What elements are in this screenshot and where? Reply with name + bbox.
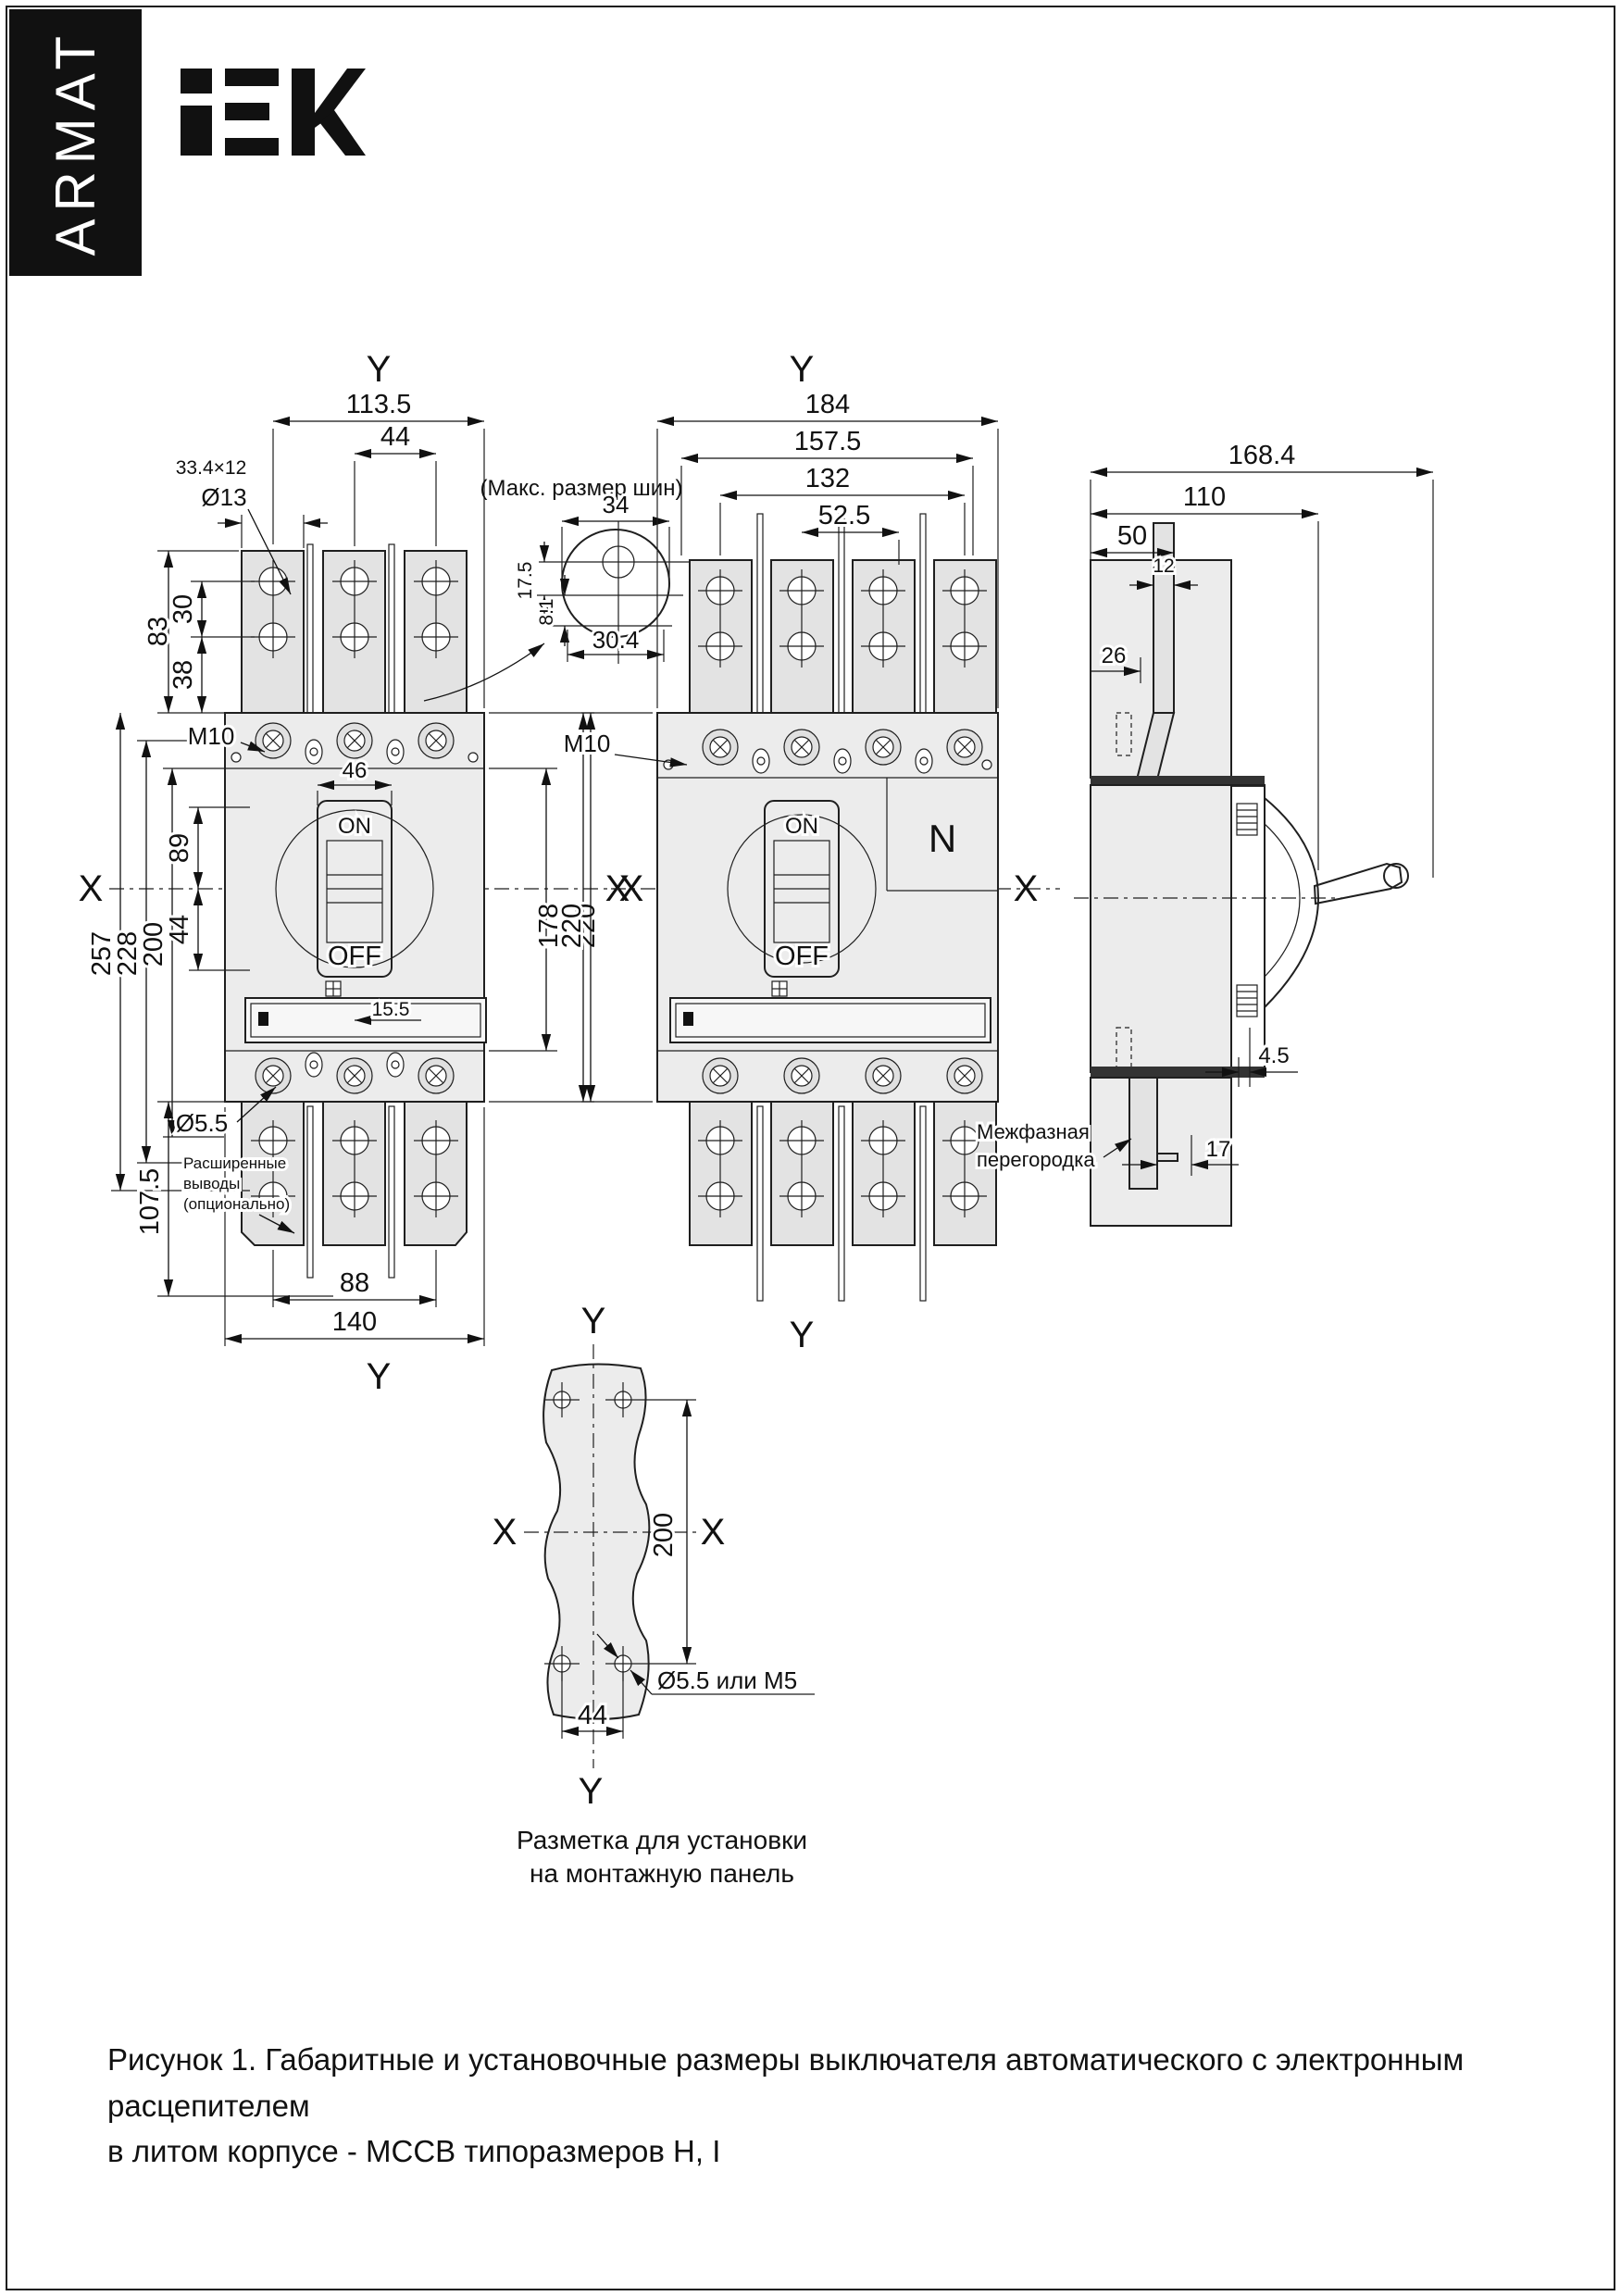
note-extended-3: (опционально) — [183, 1195, 290, 1213]
brand-vertical-text: ARMAT — [44, 29, 107, 256]
dim-46: 46 — [343, 758, 368, 783]
axis-y-bottom: Y — [579, 1771, 604, 1812]
reset-symbol — [772, 981, 787, 996]
dim-44: 44 — [578, 1701, 607, 1730]
dim-15-5: 15.5 — [372, 999, 410, 1020]
dim-89: 89 — [165, 833, 194, 863]
label-window — [670, 998, 991, 1042]
reset-symbol — [326, 981, 341, 996]
panel-caption: Разметка для установки на монтажную пане… — [430, 1824, 893, 1891]
hole-label: Ø5.5 или M5 — [657, 1666, 797, 1694]
armat-brand-banner: ARMAT — [9, 9, 142, 276]
dim-8-1: 8.1 — [536, 598, 557, 625]
dim-200: 200 — [649, 1513, 679, 1557]
axis-x-right: X — [701, 1512, 726, 1553]
bottom-extended-lugs — [242, 1102, 467, 1278]
side-view-drawing: 168.4 110 50 12 26 4.5 17 Межфазная пере… — [944, 435, 1490, 1315]
dim-157-5: 157.5 — [794, 427, 862, 456]
note-extended-2: выводы — [183, 1175, 240, 1192]
axis-y-top: Y — [581, 1301, 606, 1341]
cover-dome — [1265, 798, 1318, 1007]
dim-132: 132 — [805, 464, 850, 493]
dim-26: 26 — [1102, 643, 1127, 668]
dim-220: 220 — [557, 904, 587, 948]
on-label: ON — [785, 814, 818, 839]
off-label: OFF — [775, 942, 829, 971]
axis-x-left: X — [79, 868, 104, 909]
axis-x-left: X — [493, 1512, 517, 1553]
thread-m10: M10 — [188, 722, 235, 750]
cover-dome-inner — [1265, 824, 1300, 977]
dim-12: 12 — [1153, 555, 1174, 577]
dim-184: 184 — [805, 390, 850, 419]
axis-x-left: X — [619, 868, 644, 909]
figure-caption: Рисунок 1. Габаритные и установочные раз… — [107, 2037, 1515, 2175]
dim-30: 30 — [168, 594, 198, 624]
axis-y-top: Y — [790, 349, 815, 390]
dim-50: 50 — [1117, 521, 1147, 551]
dim-52-5: 52.5 — [818, 501, 870, 530]
thread-m10: M10 — [564, 730, 611, 757]
dim-88: 88 — [340, 1268, 369, 1298]
iek-logo-glyphs — [181, 69, 366, 156]
dim-4-5: 4.5 — [1258, 1043, 1289, 1068]
note-barrier-1: Межфазная — [977, 1120, 1090, 1143]
side-body — [1091, 785, 1231, 1072]
dim-110: 110 — [1183, 482, 1226, 512]
panel-caption-line2: на монтажную панель — [430, 1857, 893, 1890]
figure-caption-line1: Рисунок 1. Габаритные и установочные раз… — [107, 2037, 1515, 2128]
knurled-screws — [1237, 804, 1257, 1017]
dim-17-5: 17.5 — [515, 562, 536, 600]
dim-113-5: 113.5 — [346, 390, 411, 419]
dim-hole-5-5: Ø5.5 — [176, 1109, 228, 1137]
panel-caption-line1: Разметка для установки — [430, 1824, 893, 1857]
dim-33-4x12: 33.4×12 — [176, 457, 247, 479]
note-barrier-2: перегородка — [977, 1148, 1095, 1171]
iek-logo — [181, 65, 366, 161]
off-label: OFF — [328, 942, 381, 971]
toggle-handle — [1315, 864, 1408, 904]
dim-168-4: 168.4 — [1228, 441, 1296, 470]
dim-107-5: 107.5 — [135, 1168, 165, 1236]
figure-caption-line2: в литом корпусе - MCCB типоразмеров H, I — [107, 2128, 1515, 2175]
on-label: ON — [338, 814, 371, 839]
dim-17: 17 — [1206, 1137, 1231, 1162]
note-extended-1: Расширенные — [183, 1154, 286, 1172]
dim-38: 38 — [168, 660, 198, 690]
axis-y-top: Y — [367, 349, 392, 390]
dim-44-left: 44 — [165, 915, 194, 944]
dim-hole-13: Ø13 — [201, 483, 246, 511]
